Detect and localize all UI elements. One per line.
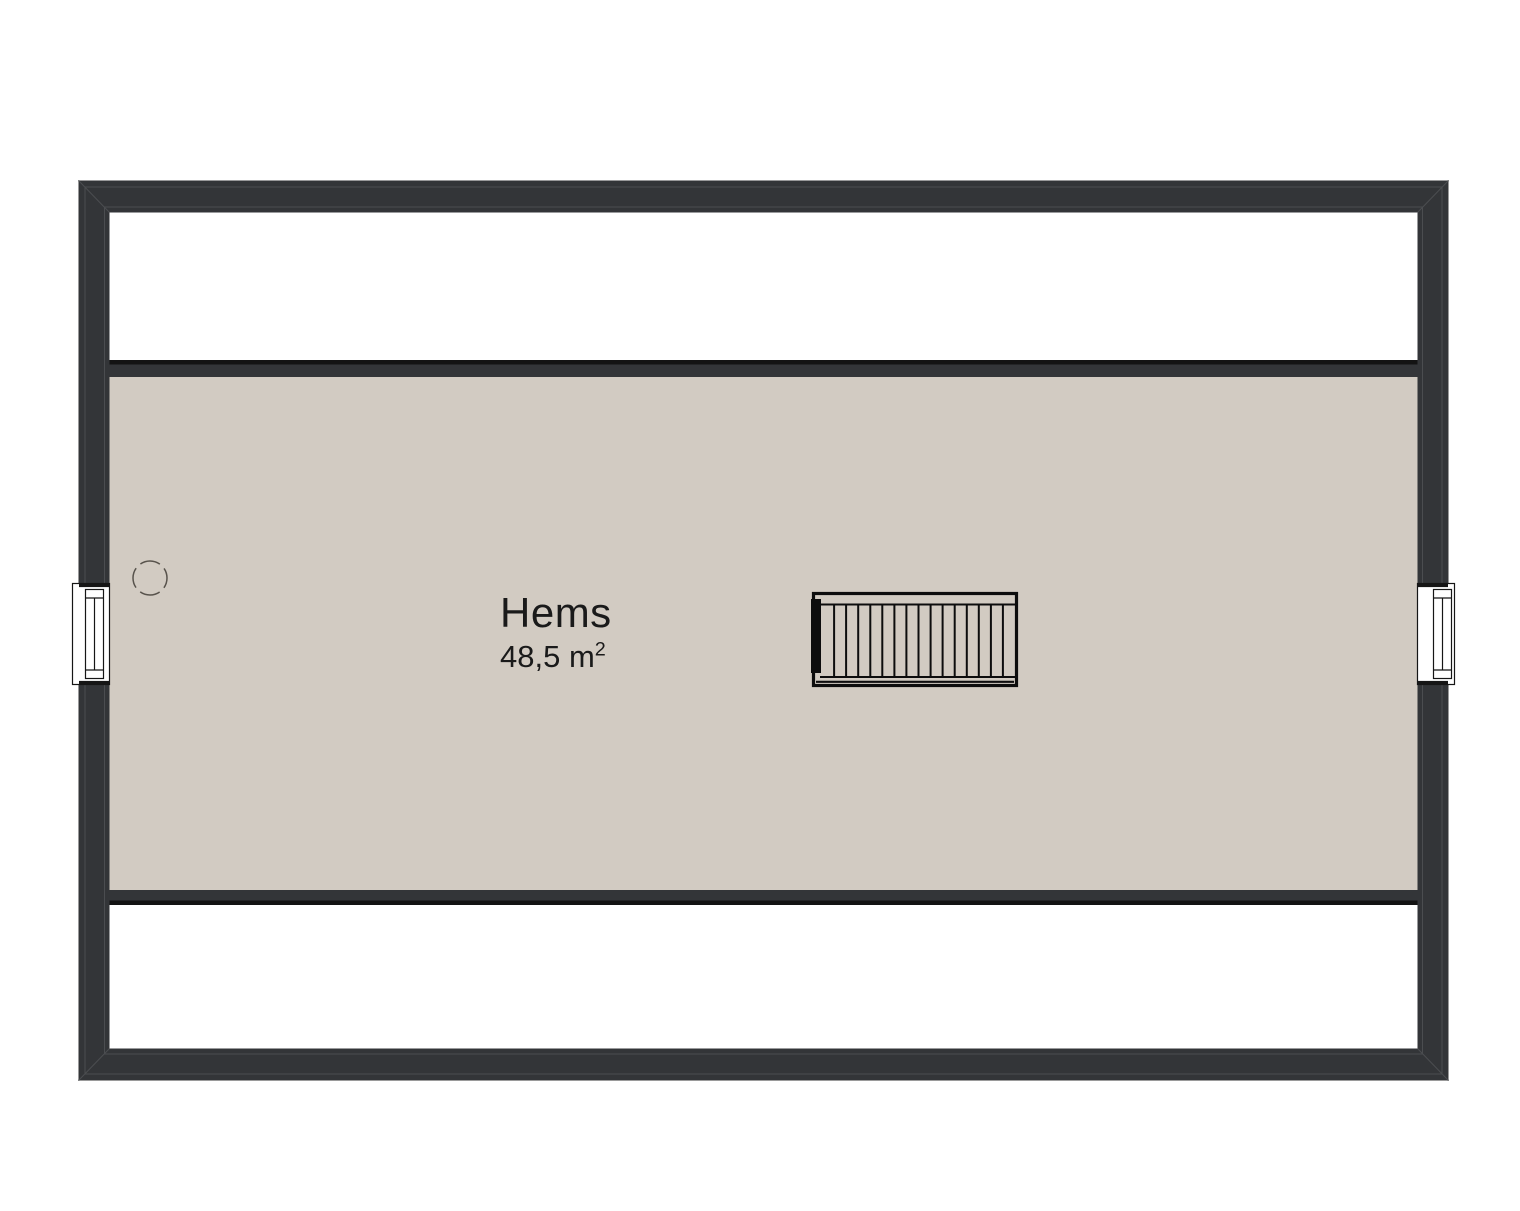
floor-plan-page: Hems 48,5 m2 <box>0 0 1520 1211</box>
right-window-sill-top <box>1418 584 1449 588</box>
left-window-sill-top <box>79 584 110 588</box>
floor-plan-drawing <box>0 0 1520 1211</box>
right-window-sill-bottom <box>1418 681 1449 685</box>
left-window <box>73 584 110 685</box>
knee-wall-bottom-edge <box>110 901 1418 906</box>
stair-entry-bar <box>811 599 821 673</box>
attic-band-top <box>110 213 1418 361</box>
left-window-sill-bottom <box>79 681 110 685</box>
knee-wall-top-edge <box>110 360 1418 365</box>
floor-area <box>110 360 1418 905</box>
attic-band-bottom <box>110 905 1418 1049</box>
right-window <box>1418 584 1455 685</box>
